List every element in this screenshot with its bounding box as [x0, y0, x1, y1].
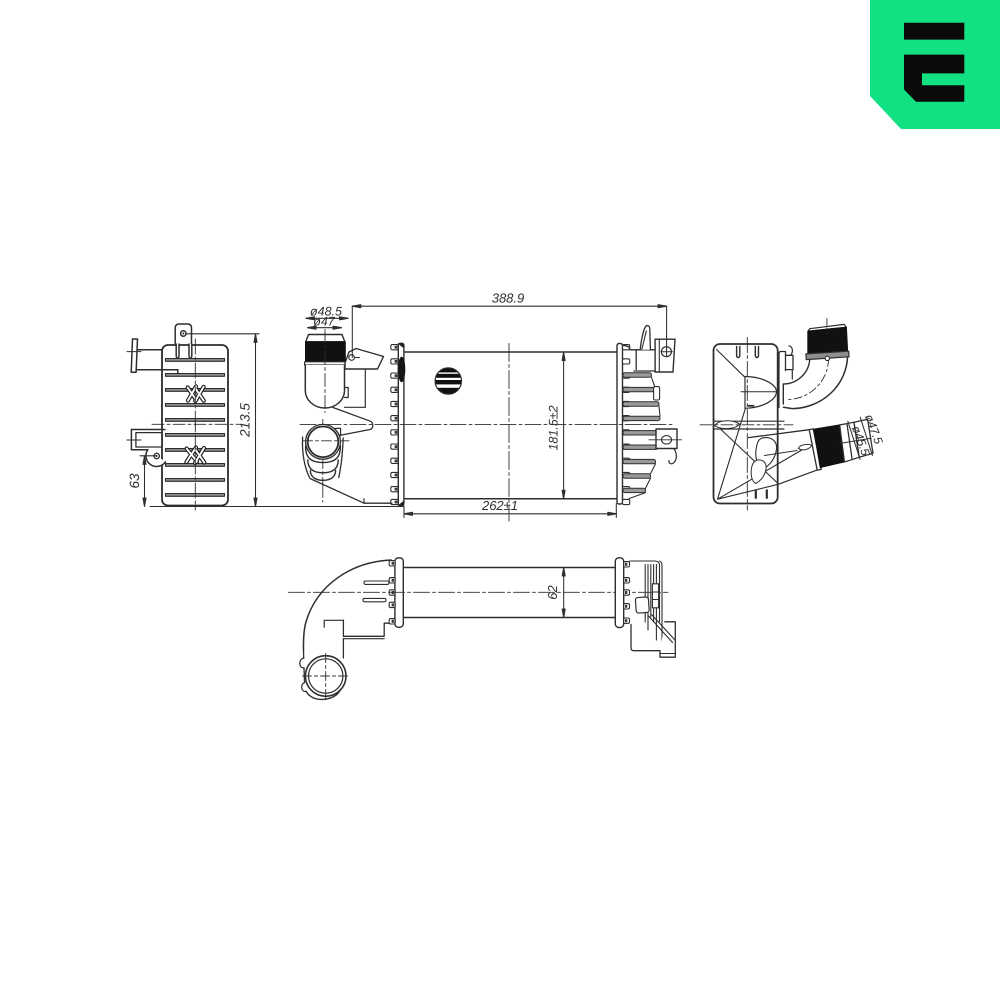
svg-text:388.9: 388.9: [492, 291, 525, 306]
svg-text:262±1: 262±1: [481, 498, 518, 513]
svg-text:62: 62: [545, 585, 560, 600]
svg-text:ø47: ø47: [313, 314, 336, 328]
svg-text:181.5±2: 181.5±2: [547, 405, 561, 450]
svg-text:63: 63: [127, 473, 142, 489]
svg-text:213.5: 213.5: [238, 403, 253, 438]
